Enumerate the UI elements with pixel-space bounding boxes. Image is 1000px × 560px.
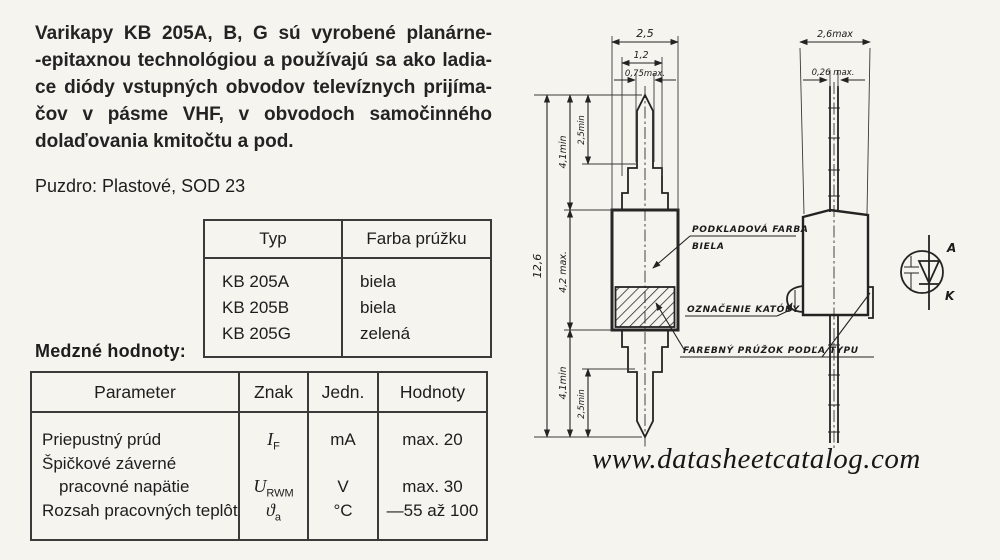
dim-label-tip-bottom: 2,5min: [577, 389, 587, 419]
table-cell: biela: [343, 269, 490, 295]
table-cell: Priepustný prúd: [32, 428, 238, 452]
color-stripe-hatch: [616, 287, 675, 327]
intro-paragraph: Varikapy KB 205A, B, G sú vyrobené planá…: [35, 20, 492, 155]
dim-label-lead-width: 0,75max.: [625, 69, 665, 79]
intro-line: Varikapy KB 205A, B, G sú vyrobené planá…: [35, 20, 492, 47]
callouts: PODKLADOVÁ FARBA BIELA OZNAČENIE KATÓDY …: [653, 223, 874, 357]
watermark: www.datasheetcatalog.com: [592, 443, 921, 476]
table-cell: mA: [309, 428, 377, 452]
limits-header-hodnoty: Hodnoty: [379, 373, 486, 411]
type-table-col-typ: KB 205A KB 205B KB 205G: [205, 259, 343, 356]
intro-line: ce diódy vstupných obvodov televíznych p…: [35, 74, 492, 101]
table-cell: biela: [343, 295, 490, 321]
limits-title: Medzné hodnoty:: [35, 341, 186, 362]
ext-line: [800, 48, 804, 214]
type-table-body: KB 205A KB 205B KB 205G biela biela zele…: [205, 259, 490, 356]
type-table-col-farba: biela biela zelená: [343, 259, 490, 356]
type-table-header-typ: Typ: [205, 221, 343, 257]
dim-label-collar-width: 1,2: [633, 50, 648, 61]
limits-col-parameter: Priepustný prúd Špičkové záverné pracovn…: [32, 413, 240, 539]
side-view: 2,6max 0,26 max.: [787, 29, 873, 448]
limits-col-jedn: mA V °C: [309, 413, 379, 539]
dim-label-body-width: 2,5: [636, 27, 654, 40]
table-cell: pracovné napätie: [32, 475, 238, 499]
dim-label-body-length: 4,2 max.: [558, 251, 569, 293]
limits-col-hodnoty: max. 20 max. 30 —55 až 100: [379, 413, 486, 539]
limits-header-znak: Znak: [240, 373, 309, 411]
package-line: Puzdro: Plastové, SOD 23: [35, 176, 245, 197]
limits-header-jedn: Jedn.: [309, 373, 379, 411]
dim-label-tip-top: 2,5min: [577, 115, 587, 145]
limits-header-parameter: Parameter: [32, 373, 240, 411]
table-cell: Rozsah pracovných teplôt: [32, 499, 238, 523]
limits-table: Parameter Znak Jedn. Hodnoty Priepustný …: [30, 371, 488, 541]
front-view: 2,5 1,2 0,75max. 12,6 4,1min 2,5min 4,2 …: [531, 27, 678, 448]
table-cell: KB 205B: [205, 295, 341, 321]
callout-base-color: PODKLADOVÁ FARBA: [692, 223, 809, 235]
technical-drawing: 2,5 1,2 0,75max. 12,6 4,1min 2,5min 4,2 …: [520, 0, 1000, 560]
dim-label-side-body-width: 2,6max: [817, 29, 853, 40]
table-cell: KB 205G: [205, 321, 341, 347]
dim-label-lead-top: 4,1min: [558, 135, 569, 168]
callout-base-color-2: BIELA: [692, 242, 725, 252]
dim-label-total-length: 12,6: [531, 254, 544, 279]
type-table-header: Typ Farba prúžku: [205, 221, 490, 259]
table-cell: KB 205A: [205, 269, 341, 295]
type-table-header-farba: Farba prúžku: [343, 221, 490, 257]
table-cell: zelená: [343, 321, 490, 347]
symbol-if: IF: [240, 428, 307, 452]
anode-label: A: [946, 241, 956, 255]
intro-line: čov v pásme VHF, v obvodoch samočinného: [35, 101, 492, 128]
symbol-theta: ϑa: [240, 499, 307, 523]
dim-label-side-lead-width: 0,26 max.: [812, 68, 855, 78]
ext-line: [867, 48, 870, 214]
symbol-urwm: URWM: [240, 475, 307, 499]
dim-label-lead-bottom: 4,1min: [558, 366, 569, 399]
type-table: Typ Farba prúžku KB 205A KB 205B KB 205G…: [203, 219, 492, 358]
intro-line: -epitaxnou technológiou a používajú sa a…: [35, 47, 492, 74]
table-cell: °C: [309, 499, 377, 523]
table-cell: —55 až 100: [379, 499, 486, 523]
intro-line: dolaďovania kmitočtu a pod.: [35, 128, 492, 155]
table-cell: Špičkové záverné: [32, 452, 238, 476]
table-cell: max. 30: [379, 475, 486, 499]
limits-table-body: Priepustný prúd Špičkové záverné pracovn…: [32, 413, 486, 539]
callout-color-stripe: FAREBNÝ PRÚŽOK PODĽA TYPU: [683, 344, 859, 356]
cathode-label: K: [945, 289, 956, 303]
limits-col-znak: IF URWM ϑa: [240, 413, 309, 539]
table-cell: V: [309, 475, 377, 499]
datasheet-page: Varikapy KB 205A, B, G sú vyrobené planá…: [0, 0, 1000, 560]
symbol-circle: [901, 251, 943, 293]
table-cell: max. 20: [379, 428, 486, 452]
diode-symbol: A K: [901, 235, 956, 310]
side-body: [803, 210, 868, 315]
leader-line: [653, 236, 690, 268]
limits-table-header: Parameter Znak Jedn. Hodnoty: [32, 373, 486, 413]
